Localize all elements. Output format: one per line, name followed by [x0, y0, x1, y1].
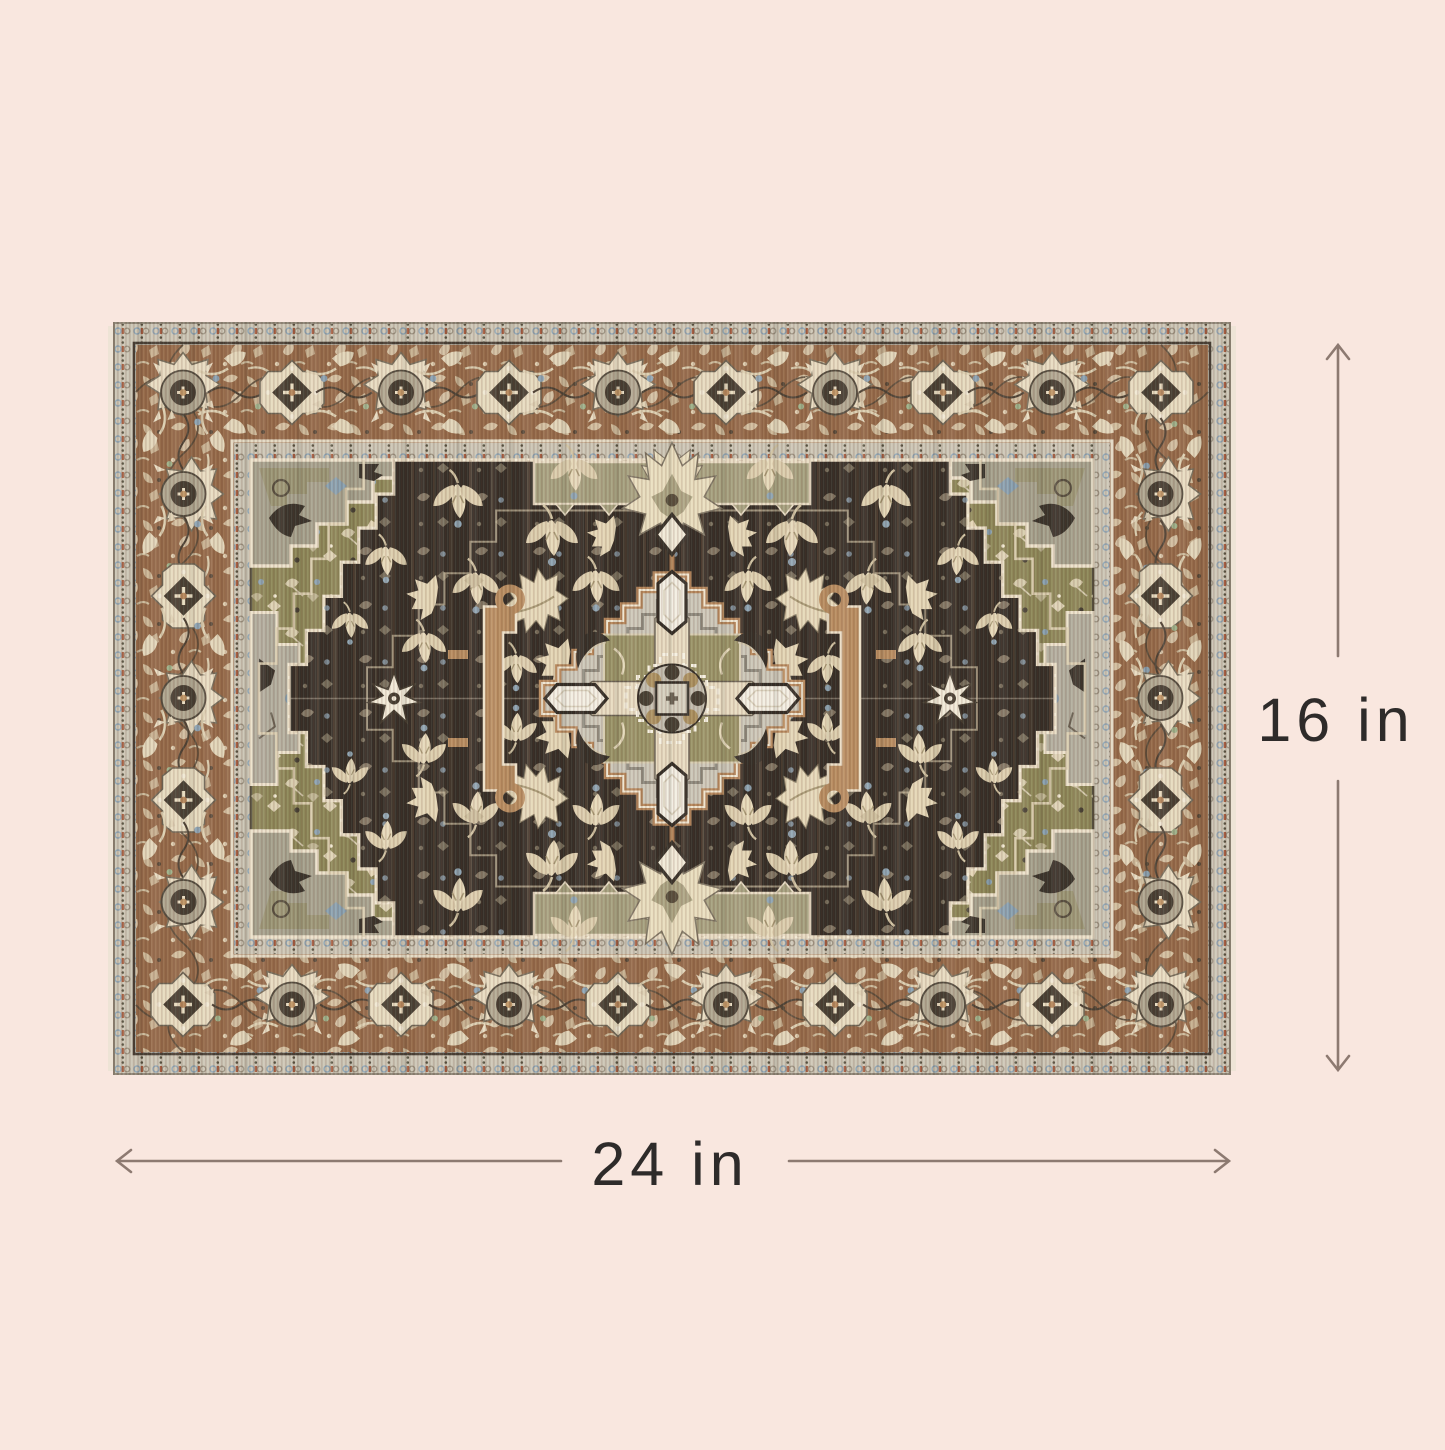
svg-text:16 in: 16 in	[1257, 686, 1414, 754]
svg-text:24 in: 24 in	[591, 1130, 748, 1198]
